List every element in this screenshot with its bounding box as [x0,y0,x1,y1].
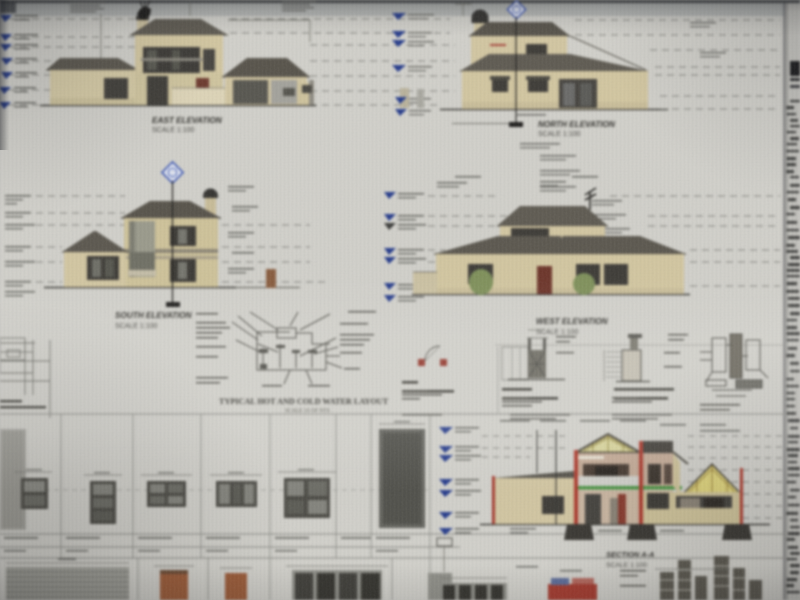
svg-text:SCALE 1:100: SCALE 1:100 [606,562,647,569]
svg-text:EAST ELEVATION: EAST ELEVATION [152,116,223,125]
svg-text:SCALE 1:100: SCALE 1:100 [152,127,195,134]
svg-text:SECTION A-A: SECTION A-A [606,550,654,559]
svg-text:SCALE 1:100: SCALE 1:100 [115,323,158,330]
svg-text:TYPICAL HOT AND COLD WATER LAY: TYPICAL HOT AND COLD WATER LAYOUT [219,397,389,406]
svg-text:SOUTH ELEVATION: SOUTH ELEVATION [115,311,193,320]
svg-text:NORTH ELEVATION: NORTH ELEVATION [538,120,616,129]
svg-text:SCALE 1:100: SCALE 1:100 [538,131,581,138]
svg-text:WEST ELEVATION: WEST ELEVATION [536,317,609,326]
svg-text:SCALE 1S OF NTS: SCALE 1S OF NTS [285,408,330,414]
